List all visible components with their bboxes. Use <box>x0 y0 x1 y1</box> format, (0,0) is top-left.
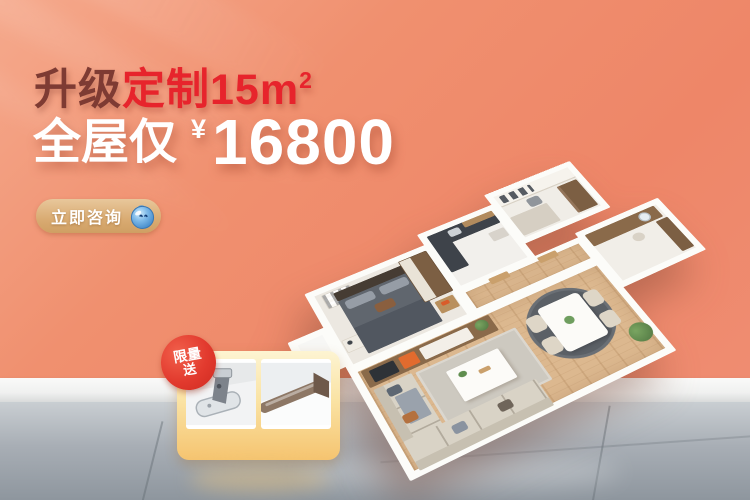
gift-product-rail <box>261 359 331 429</box>
floor-reflection <box>300 455 620 489</box>
wardrobe-rail-icon <box>261 359 331 429</box>
gift-promo-card[interactable]: 限量 送 <box>177 351 340 460</box>
consult-now-button[interactable]: 立即咨询 <box>36 199 161 233</box>
tile-seam <box>139 421 164 500</box>
headline-superscript: 2 <box>299 67 313 93</box>
price-amount: 16800 <box>212 108 395 176</box>
promo-banner: 升级定制15m2 全屋仅 ¥ 16800 立即咨询 <box>0 0 750 500</box>
headline-prefix: 升级 <box>34 66 122 114</box>
tile-seam <box>591 406 610 500</box>
price-line: 全屋仅 ¥ 16800 <box>33 108 395 178</box>
card-floor-reflection <box>190 466 330 492</box>
water-drop-mascot-icon <box>129 203 156 230</box>
currency-symbol: ¥ <box>191 114 206 145</box>
price-prefix: 全屋仅 <box>33 108 177 178</box>
baseboard <box>0 378 750 402</box>
consult-now-label: 立即咨询 <box>51 204 123 228</box>
